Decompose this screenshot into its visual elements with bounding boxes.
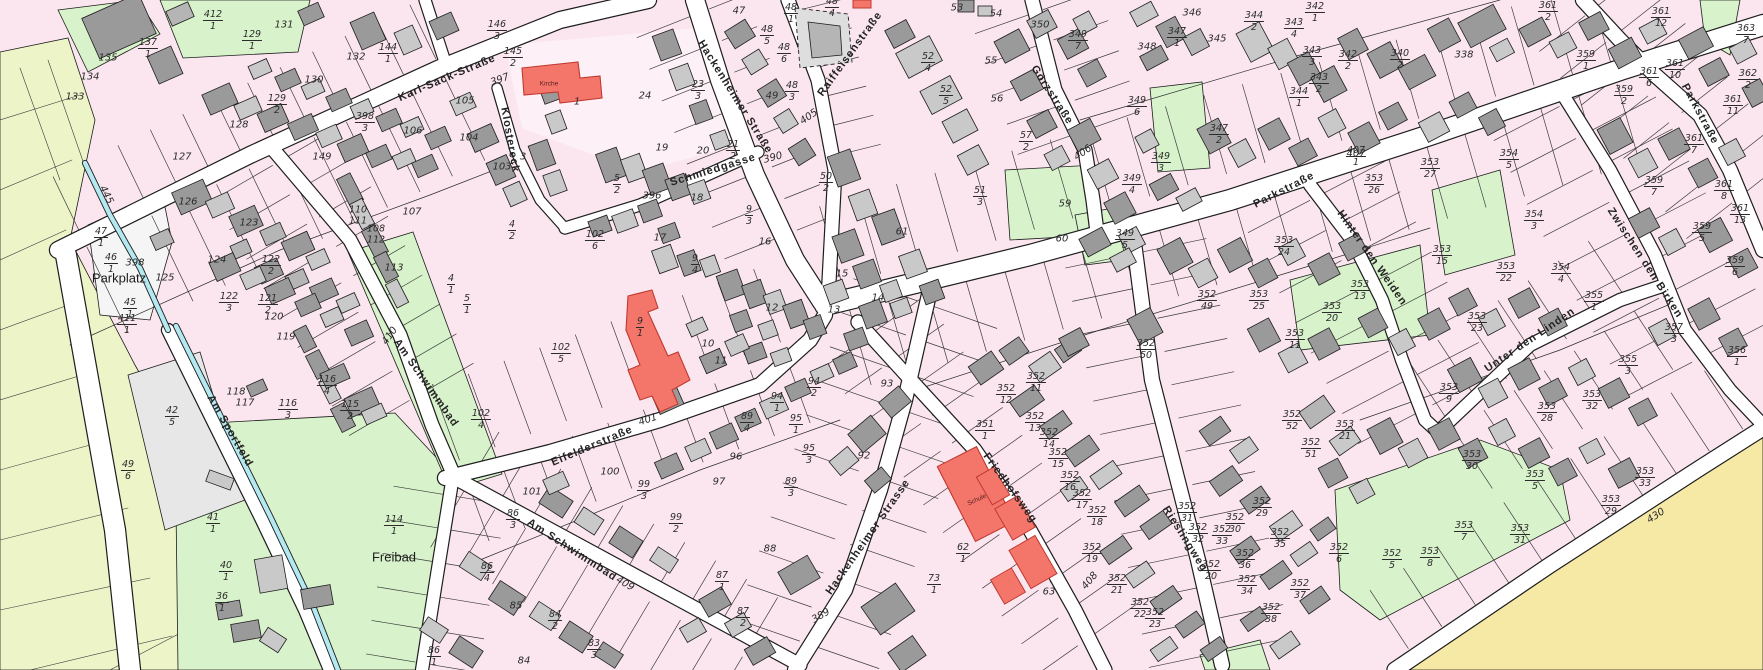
map-canvas[interactable] [0, 0, 1763, 670]
building [254, 555, 287, 593]
building [958, 0, 974, 12]
map-root: 4121137112911292398314411463145212221223… [0, 0, 1763, 670]
building [978, 6, 992, 16]
highlighted-building [853, 0, 871, 8]
building [808, 22, 842, 58]
